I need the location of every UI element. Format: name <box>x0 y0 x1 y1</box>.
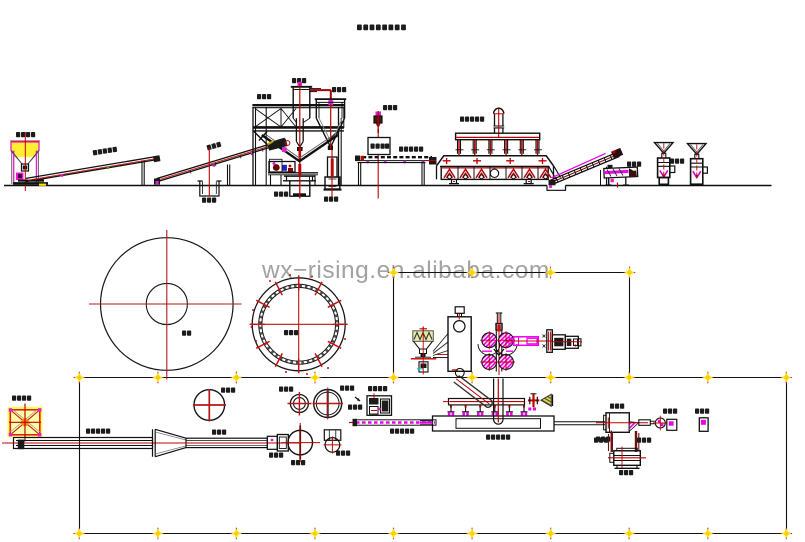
svg-text:wx−rising.en.alibaba.com: wx−rising.en.alibaba.com <box>261 257 550 284</box>
